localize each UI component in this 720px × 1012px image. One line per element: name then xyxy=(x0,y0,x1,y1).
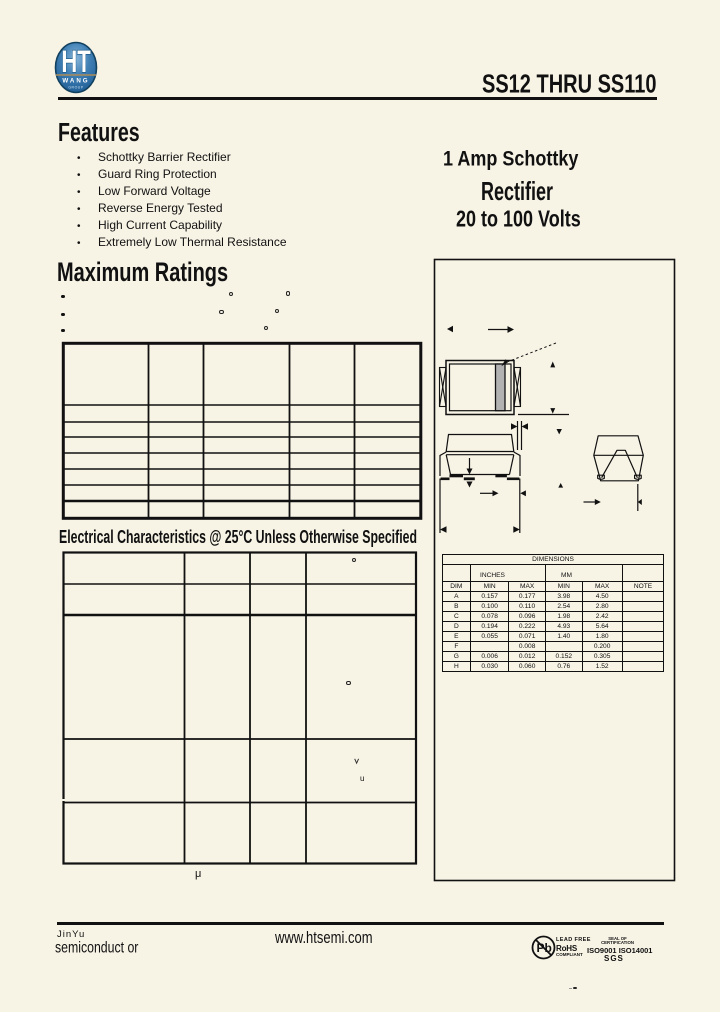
svg-text:HT: HT xyxy=(61,44,91,79)
svg-text:GROUP: GROUP xyxy=(68,86,84,90)
svg-text:WANG: WANG xyxy=(62,78,89,85)
